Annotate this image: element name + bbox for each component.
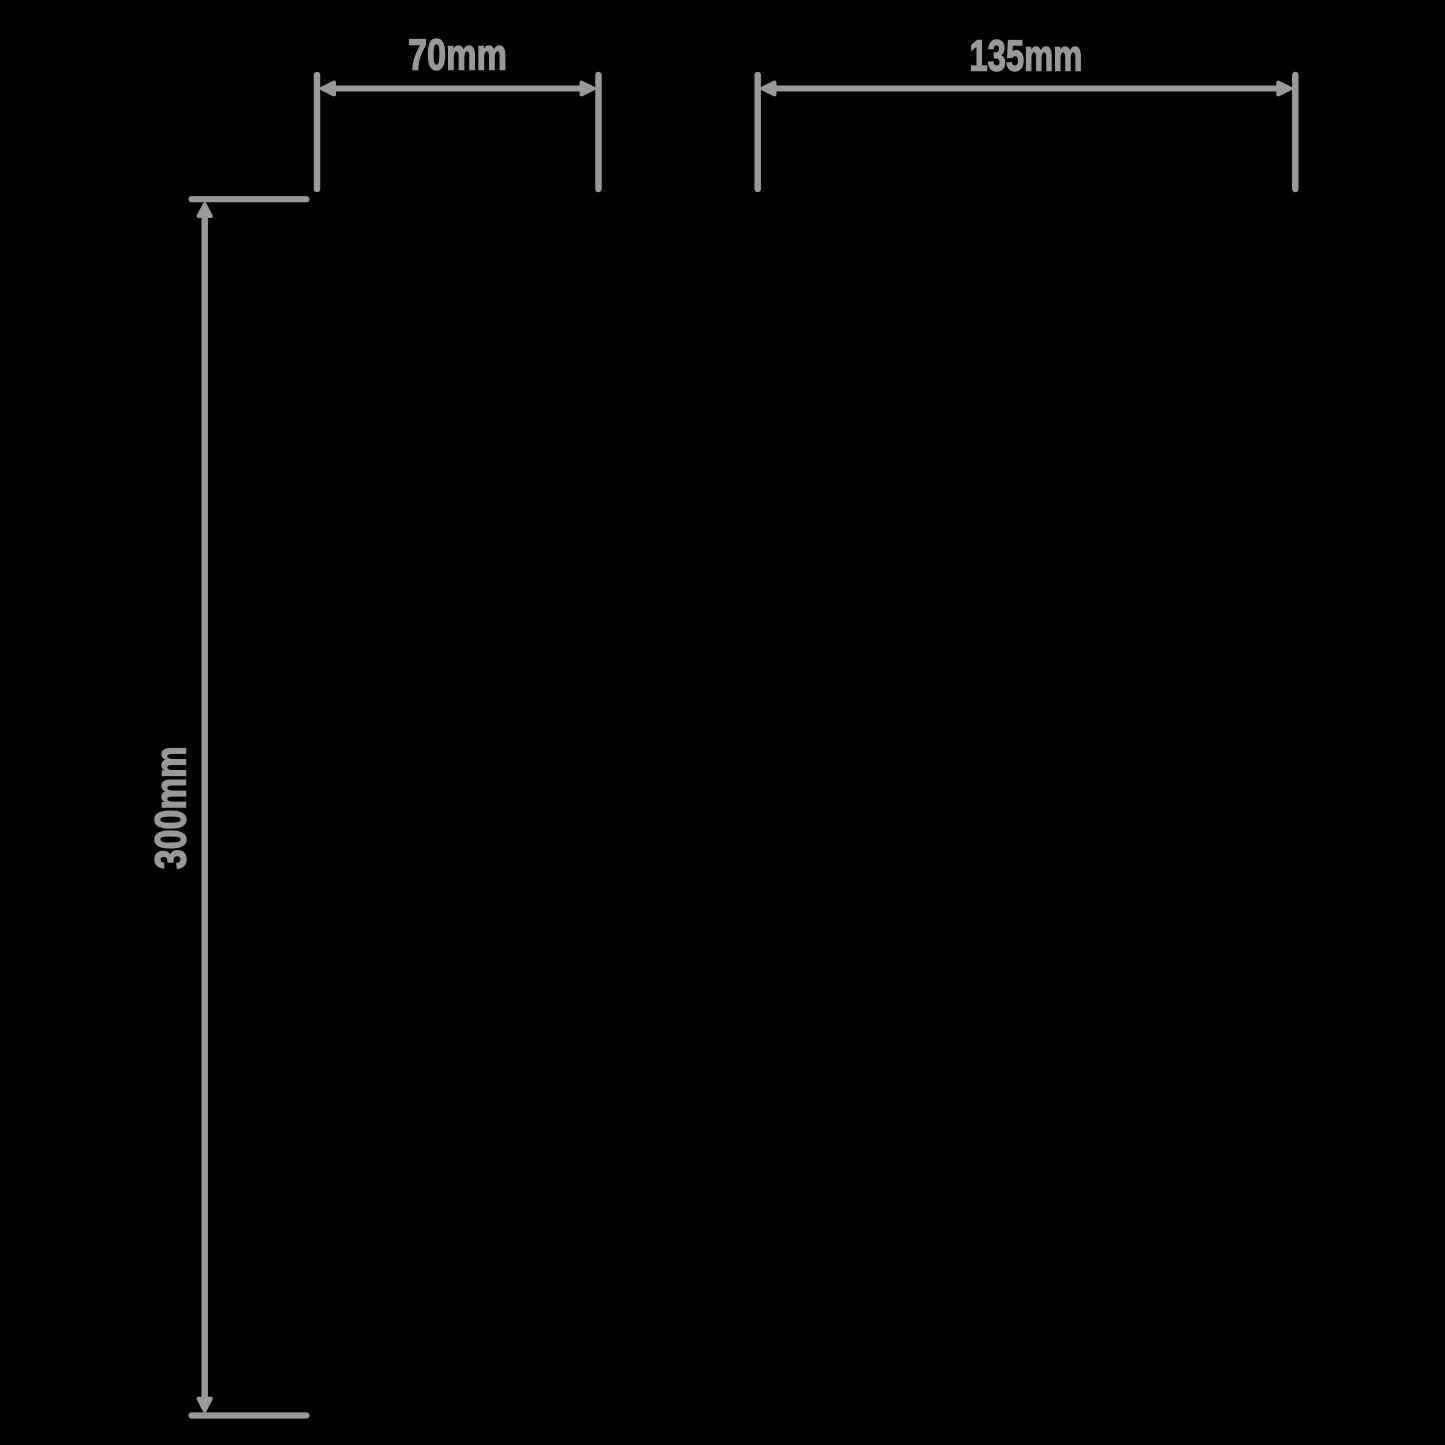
svg-text:70mm: 70mm	[408, 31, 507, 80]
svg-text:135mm: 135mm	[969, 31, 1082, 80]
svg-text:300mm: 300mm	[146, 746, 195, 869]
